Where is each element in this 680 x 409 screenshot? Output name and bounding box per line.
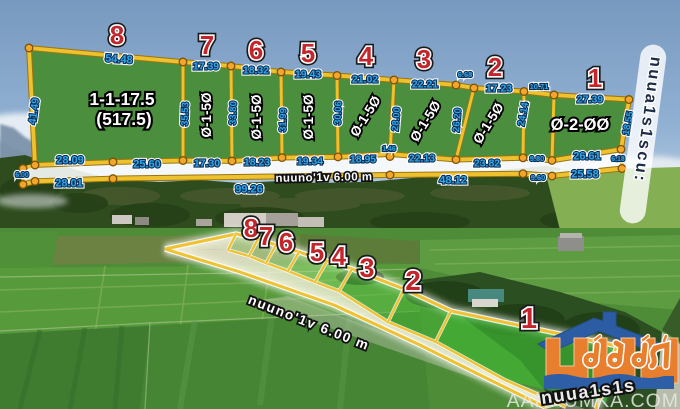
svg-text:4: 4 (359, 41, 374, 71)
svg-text:25.60: 25.60 (133, 159, 161, 171)
svg-text:23.82: 23.82 (474, 157, 500, 169)
svg-text:5: 5 (301, 38, 315, 68)
svg-text:4: 4 (332, 241, 347, 271)
svg-text:19.34: 19.34 (297, 155, 323, 167)
svg-text:2: 2 (488, 52, 502, 82)
svg-text:17.23: 17.23 (486, 82, 512, 94)
svg-text:3: 3 (417, 44, 431, 74)
svg-text:28.01: 28.01 (55, 178, 83, 190)
svg-text:27.39: 27.39 (577, 93, 603, 105)
svg-text:1: 1 (588, 63, 602, 93)
svg-text:8: 8 (244, 213, 258, 243)
svg-text:30.06: 30.06 (333, 101, 345, 125)
svg-text:9.80: 9.80 (530, 154, 545, 163)
svg-text:33.80: 33.80 (228, 101, 240, 125)
svg-text:1.46: 1.46 (382, 146, 396, 153)
svg-text:1: 1 (521, 303, 537, 335)
svg-text:18.23: 18.23 (244, 156, 270, 168)
svg-text:22.13: 22.13 (409, 152, 435, 164)
svg-text:48.12: 48.12 (439, 175, 467, 187)
svg-text:9.60: 9.60 (531, 173, 546, 182)
svg-text:6.68: 6.68 (458, 70, 473, 79)
svg-text:31.99: 31.99 (278, 108, 290, 132)
svg-text:3: 3 (359, 253, 374, 283)
svg-text:28.00: 28.00 (390, 107, 403, 132)
svg-text:6.18: 6.18 (611, 156, 625, 163)
svg-text:Ø-1-5Ø: Ø-1-5Ø (301, 94, 316, 139)
svg-text:26.20: 26.20 (451, 108, 464, 133)
svg-text:35.53: 35.53 (180, 102, 192, 126)
svg-text:54.48: 54.48 (105, 53, 133, 67)
svg-text:Ø-1-5Ø: Ø-1-5Ø (199, 92, 214, 137)
svg-text:10.71: 10.71 (530, 82, 549, 91)
svg-text:nuuno'1v 6.00 m: nuuno'1v 6.00 m (275, 171, 372, 185)
svg-text:5: 5 (310, 237, 324, 267)
svg-text:99.26: 99.26 (235, 184, 263, 196)
svg-text:6.00: 6.00 (15, 172, 29, 179)
svg-text:6: 6 (279, 227, 293, 257)
svg-text:18.95: 18.95 (350, 153, 376, 165)
svg-text:19.43: 19.43 (295, 68, 321, 80)
svg-text:22.21: 22.21 (412, 78, 438, 90)
svg-text:17.39: 17.39 (193, 60, 219, 72)
svg-text:2: 2 (405, 265, 421, 296)
svg-text:18.32: 18.32 (243, 64, 269, 76)
svg-text:21.02: 21.02 (352, 73, 378, 85)
svg-text:Ø-1-5Ø: Ø-1-5Ø (249, 94, 264, 139)
svg-text:7: 7 (200, 30, 214, 60)
svg-text:25.58: 25.58 (571, 169, 599, 181)
svg-text:1-1-17.5: 1-1-17.5 (89, 89, 154, 109)
svg-text:26.61: 26.61 (573, 151, 601, 163)
svg-text:6: 6 (249, 35, 263, 65)
svg-text:28.09: 28.09 (56, 155, 84, 167)
svg-text:(517.5): (517.5) (96, 109, 151, 129)
svg-text:Ø-2-ØØ: Ø-2-ØØ (551, 116, 610, 134)
svg-text:8: 8 (110, 20, 124, 50)
svg-text:7: 7 (259, 221, 273, 251)
svg-text:17.30: 17.30 (194, 157, 220, 169)
